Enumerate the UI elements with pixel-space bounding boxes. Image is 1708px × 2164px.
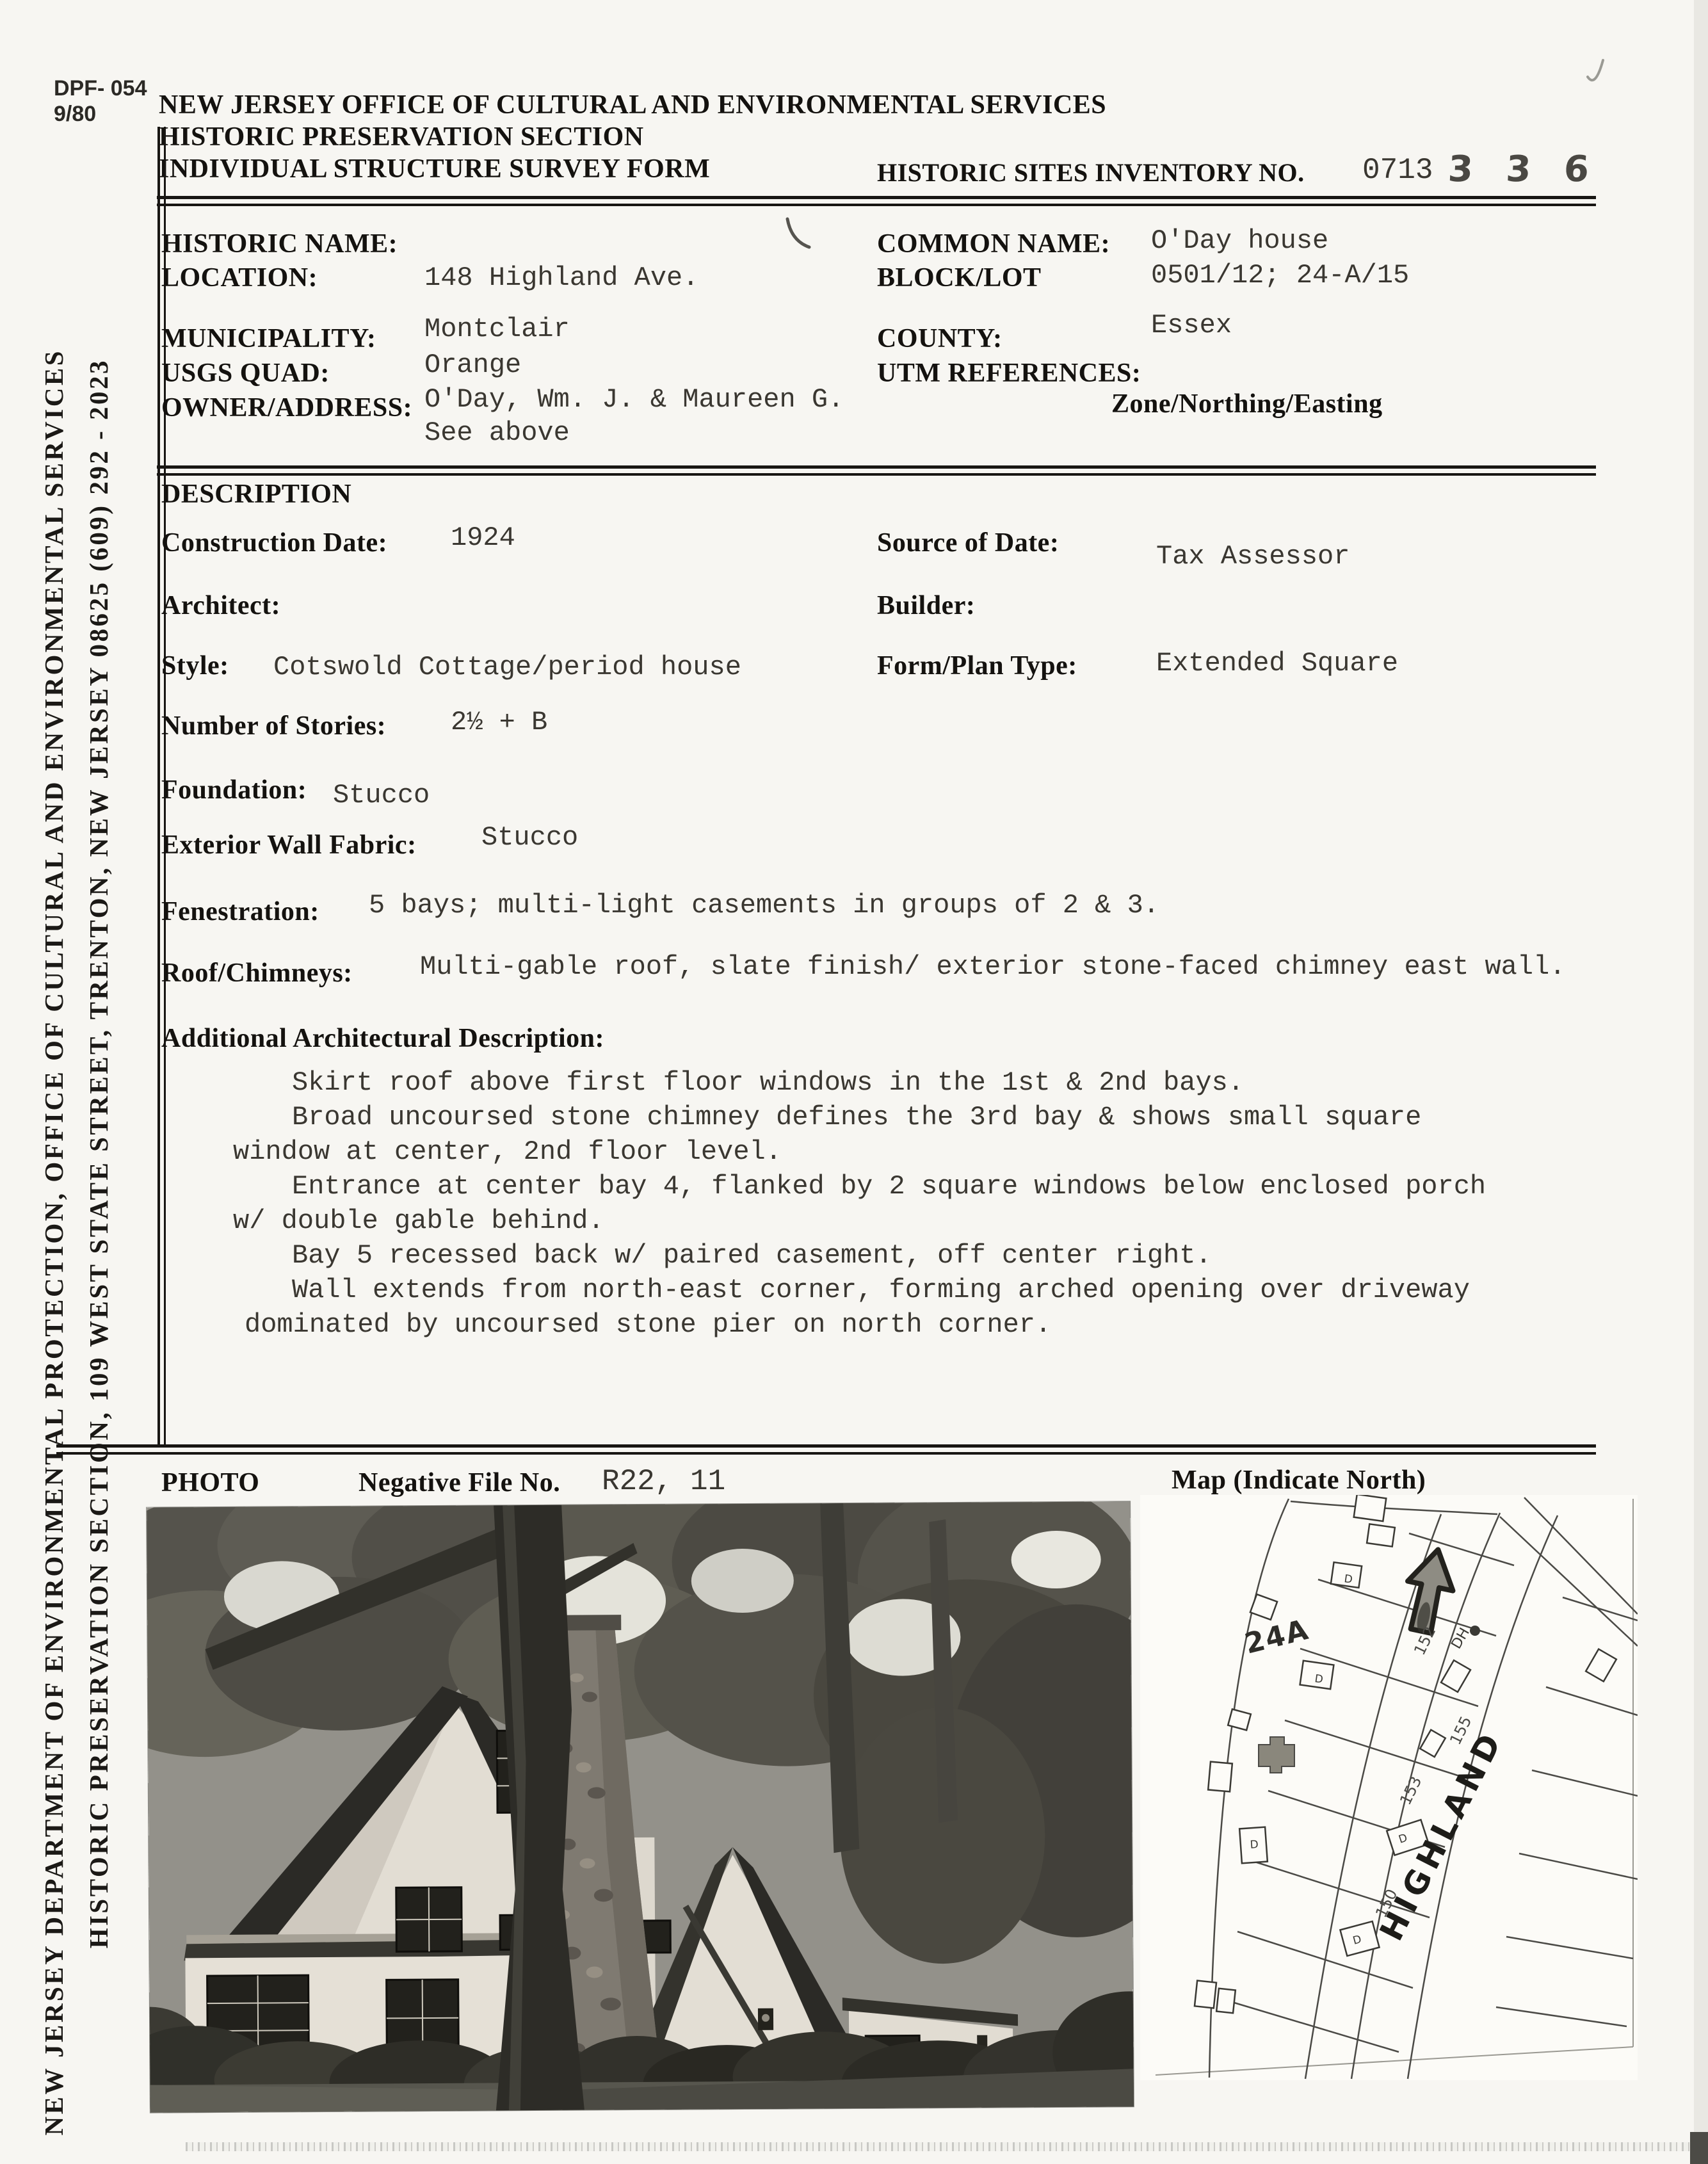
- source-of-date-value: Tax Assessor: [1156, 541, 1349, 572]
- form-code-date: 9/80: [54, 101, 147, 127]
- sidebar-agency-line1: NEW JERSEY DEPARTMENT OF ENVIRONMENTAL P…: [38, 349, 69, 2135]
- location-map-image: 24A HIGHLAND DH 150 152 153 155 D D D D …: [1140, 1495, 1638, 2080]
- common-name-value: O'Day house: [1151, 225, 1328, 256]
- divider-identification: [157, 465, 1596, 476]
- description-line: window at center, 2nd floor level.: [233, 1134, 1486, 1169]
- common-name-label: COMMON NAME:: [877, 229, 1110, 259]
- county-value: Essex: [1151, 310, 1232, 341]
- county-label: COUNTY:: [877, 323, 1003, 354]
- description-section-title: DESCRIPTION: [161, 479, 351, 510]
- construction-date-value: 1924: [451, 522, 515, 553]
- map-building-mark: D: [1343, 1572, 1353, 1587]
- utm-zone-sublabel: Zone/Northing/Easting: [1111, 389, 1383, 419]
- roof-chimneys-value: Multi-gable roof, slate finish/ exterior…: [420, 951, 1566, 982]
- block-lot-label: BLOCK/LOT: [877, 262, 1042, 293]
- description-line: Broad uncoursed stone chimney defines th…: [233, 1100, 1486, 1134]
- inventory-number-handwritten: 3 3 6: [1447, 149, 1600, 190]
- negative-file-label: Negative File No.: [359, 1467, 560, 1498]
- municipality-value: Montclair: [424, 314, 570, 344]
- house-photo: [147, 1501, 1134, 2112]
- style-label: Style:: [161, 650, 229, 681]
- wall-fabric-label: Exterior Wall Fabric:: [161, 830, 417, 860]
- construction-date-label: Construction Date:: [161, 528, 387, 558]
- builder-label: Builder:: [877, 590, 975, 621]
- location-label: LOCATION:: [161, 262, 318, 293]
- description-line: Entrance at center bay 4, flanked by 2 s…: [233, 1169, 1486, 1204]
- scan-corner-artifact: [1690, 2132, 1708, 2164]
- map-building-mark: D: [1314, 1672, 1324, 1686]
- inventory-number-label: HISTORIC SITES INVENTORY NO.: [877, 157, 1305, 188]
- map-label: Map (Indicate North): [1172, 1465, 1426, 1496]
- pencil-check-icon: [1581, 46, 1658, 104]
- description-line: w/ double gable behind.: [233, 1204, 1486, 1238]
- stories-value: 2½ + B: [451, 707, 547, 738]
- location-map: 24A HIGHLAND DH 150 152 153 155 D D D D …: [1140, 1495, 1638, 2080]
- architect-label: Architect:: [161, 590, 280, 621]
- foundation-label: Foundation:: [161, 775, 307, 805]
- negative-file-value: R22, 11: [602, 1465, 725, 1498]
- block-lot-value: 0501/12; 24-A/15: [1151, 260, 1409, 291]
- description-line: dominated by uncoursed stone pier on nor…: [233, 1307, 1486, 1342]
- stories-label: Number of Stories:: [161, 711, 386, 741]
- divider-photo: [56, 1444, 1596, 1455]
- description-line: Wall extends from north-east corner, for…: [233, 1273, 1486, 1307]
- scan-edge-shading: [1694, 0, 1708, 2164]
- owner-address-value2: See above: [424, 417, 570, 448]
- owner-address-value: O'Day, Wm. J. & Maureen G.: [424, 384, 844, 415]
- form-plan-value: Extended Square: [1156, 648, 1398, 679]
- roof-chimneys-label: Roof/Chimneys:: [161, 958, 353, 989]
- map-building-mark: D: [1250, 1838, 1259, 1852]
- location-value: 148 Highland Ave.: [424, 262, 698, 293]
- source-of-date-label: Source of Date:: [877, 528, 1059, 558]
- fenestration-label: Fenestration:: [161, 896, 319, 927]
- usgs-quad-label: USGS QUAD:: [161, 358, 330, 389]
- description-line: Bay 5 recessed back w/ paired casement, …: [233, 1238, 1486, 1273]
- usgs-quad-value: Orange: [424, 350, 521, 380]
- inventory-number-typed: 0713: [1362, 154, 1433, 187]
- additional-description-text: Skirt roof above first floor windows in …: [233, 1065, 1486, 1342]
- wall-fabric-value: Stucco: [481, 822, 578, 853]
- pencil-mark: [780, 215, 818, 260]
- survey-form-page: NEW JERSEY DEPARTMENT OF ENVIRONMENTAL P…: [0, 0, 1708, 2164]
- fenestration-value: 5 bays; multi-light casements in groups …: [369, 890, 1159, 921]
- house-photo-image: [147, 1501, 1134, 2112]
- form-plan-label: Form/Plan Type:: [877, 650, 1077, 681]
- municipality-label: MUNICIPALITY:: [161, 323, 376, 354]
- style-value: Cotswold Cottage/period house: [273, 652, 741, 682]
- utm-references-label: UTM REFERENCES:: [877, 358, 1141, 389]
- sidebar-agency-line2: HISTORIC PRESERVATION SECTION, 109 WEST …: [83, 359, 114, 1948]
- photo-label: PHOTO: [161, 1467, 259, 1498]
- form-code-number: DPF- 054: [54, 76, 147, 101]
- header-section: HISTORIC PRESERVATION SECTION: [159, 122, 644, 152]
- foundation-value: Stucco: [333, 780, 430, 811]
- historic-name-label: HISTORIC NAME:: [161, 229, 398, 259]
- header-form-title: INDIVIDUAL STRUCTURE SURVEY FORM: [159, 154, 710, 184]
- additional-description-label: Additional Architectural Description:: [161, 1023, 604, 1054]
- owner-address-label: OWNER/ADDRESS:: [161, 392, 412, 423]
- header-agency: NEW JERSEY OFFICE OF CULTURAL AND ENVIRO…: [159, 90, 1106, 120]
- divider-top: [157, 196, 1596, 206]
- scan-bottom-artifact: [186, 2142, 1708, 2151]
- form-code: DPF- 054 9/80: [54, 76, 147, 127]
- description-line: Skirt roof above first floor windows in …: [233, 1065, 1486, 1100]
